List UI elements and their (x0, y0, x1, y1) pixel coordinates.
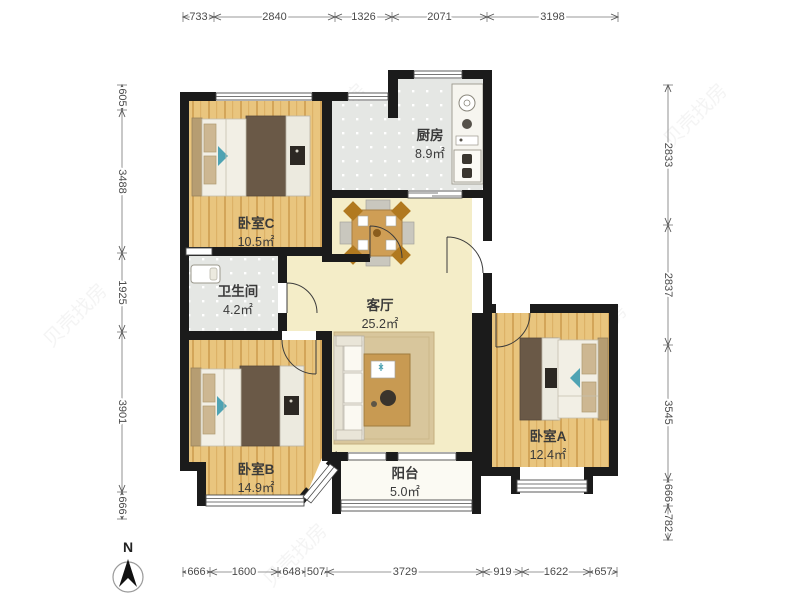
room-area: 12.4㎡ (530, 448, 567, 462)
bathroom-furniture (191, 265, 220, 283)
plate (386, 240, 396, 250)
pillow (203, 374, 215, 402)
decor-bowl (380, 390, 396, 406)
room-name: 阳台 (392, 465, 419, 481)
plate (386, 216, 396, 226)
dimension-value: 2840 (262, 11, 286, 23)
sink-icon (459, 95, 475, 111)
small-appliance-icon (456, 136, 478, 145)
dimension-value: 919 (493, 566, 511, 578)
balcony-window (341, 500, 472, 511)
pillow (204, 156, 216, 184)
dimension-value: 648 (282, 566, 300, 578)
north-compass: N (113, 539, 143, 592)
dimension-value: 3729 (393, 566, 417, 578)
dimension-value: 782 (662, 514, 674, 532)
pillow (582, 344, 596, 374)
dimension-value: 1600 (232, 566, 256, 578)
room-area: 5.0㎡ (390, 485, 420, 499)
sliding-door (408, 191, 462, 198)
dimension-value: 3488 (116, 169, 128, 193)
chair-icon (340, 222, 352, 244)
room-area: 14.9㎡ (238, 481, 275, 495)
room-area: 10.5㎡ (238, 235, 275, 249)
dimension-value: 1622 (544, 566, 568, 578)
chair-icon (366, 200, 390, 211)
pillow (204, 124, 216, 152)
bed-headboard (192, 118, 202, 196)
chair-icon (402, 222, 414, 244)
dimension-value: 3901 (116, 400, 128, 424)
dimension-value: 666 (116, 496, 128, 514)
dimension-value: 2833 (662, 143, 674, 167)
bedroom-c-furniture (192, 116, 310, 196)
wardrobe-icon (246, 116, 286, 196)
kitchen-furniture (452, 84, 483, 184)
plate (358, 240, 368, 250)
room-area: 4.2㎡ (223, 303, 253, 317)
bay-window (517, 480, 587, 492)
tv-icon (290, 146, 305, 165)
sliding-window (398, 453, 456, 460)
room-area: 8.9㎡ (415, 147, 445, 161)
floor-plan-page: 贝壳找房 贝壳找房 贝壳找房 贝壳找房 贝壳找房 (0, 0, 800, 600)
bedroom-b-furniture (191, 366, 304, 446)
pillow (582, 382, 596, 412)
dimension-value: 666 (187, 566, 205, 578)
dimension-value: 507 (307, 566, 325, 578)
burner-icon (462, 119, 472, 129)
floor-plan: 贝壳找房 贝壳找房 贝壳找房 贝壳找房 贝壳找房 (0, 0, 800, 600)
dimension-value: 666 (662, 484, 674, 502)
bed-headboard (191, 368, 201, 446)
dimension-value: 2071 (427, 11, 451, 23)
sofa-cushion (344, 373, 362, 403)
bed-headboard (598, 338, 608, 420)
wardrobe-icon (240, 366, 280, 446)
dimension-value: 657 (594, 566, 612, 578)
room-name: 卫生间 (218, 283, 259, 299)
room-name: 卧室C (238, 215, 275, 231)
dimension-value: 3545 (662, 400, 674, 424)
tv-icon (545, 368, 557, 388)
dimension-value: 1326 (351, 11, 375, 23)
dimension-value: 3198 (540, 11, 564, 23)
svg-text:贝壳找房: 贝壳找房 (39, 279, 112, 352)
room-area: 25.2㎡ (362, 317, 399, 331)
window (186, 248, 212, 255)
pillow (203, 406, 215, 434)
dimension-value: 1925 (116, 280, 128, 304)
tv-icon (284, 396, 299, 415)
bedroom-a-furniture (520, 338, 608, 420)
dimension-value: 605 (116, 88, 128, 106)
dimension-value: 2837 (662, 273, 674, 297)
north-label: N (123, 539, 133, 555)
room-name: 客厅 (366, 297, 394, 313)
plate (358, 216, 368, 226)
bay-window (206, 495, 304, 506)
tray (371, 361, 395, 378)
room-name: 厨房 (417, 127, 444, 143)
svg-text:贝壳找房: 贝壳找房 (259, 519, 332, 592)
room-name: 卧室A (530, 428, 567, 444)
dimension-value: 733 (189, 11, 207, 23)
sliding-window (348, 453, 386, 460)
room-name: 卧室B (238, 461, 275, 477)
